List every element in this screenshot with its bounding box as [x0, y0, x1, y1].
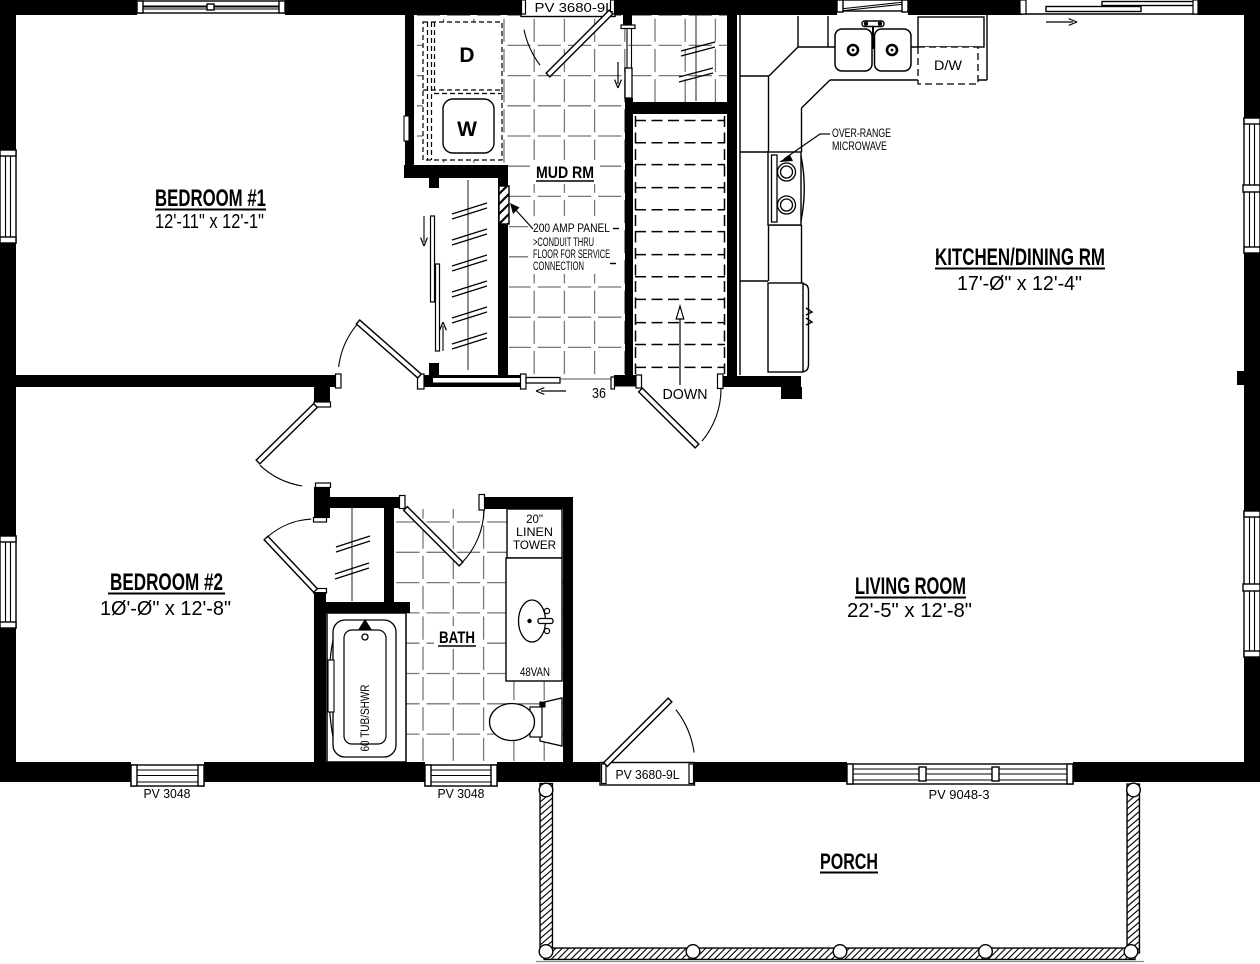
svg-text:PV 3048: PV 3048 [144, 786, 191, 801]
svg-text:MICROWAVE: MICROWAVE [832, 139, 887, 153]
svg-text:PV 9048-3: PV 9048-3 [929, 787, 990, 802]
svg-text:MUD RM: MUD RM [536, 163, 594, 182]
svg-text:DOWN: DOWN [663, 386, 708, 403]
svg-text:1Ø'-Ø" x 12'-8": 1Ø'-Ø" x 12'-8" [100, 598, 231, 620]
svg-text:D/W: D/W [934, 57, 963, 73]
svg-text:200 AMP PANEL: 200 AMP PANEL [533, 221, 610, 235]
svg-text:LIVING ROOM: LIVING ROOM [855, 573, 966, 600]
svg-text:20": 20" [526, 514, 543, 526]
svg-text:FLOOR FOR SERVICE: FLOOR FOR SERVICE [533, 249, 610, 261]
svg-text:TOWER: TOWER [513, 540, 556, 552]
svg-text:OVER-RANGE: OVER-RANGE [832, 126, 891, 140]
svg-text:PV 3048: PV 3048 [438, 786, 485, 801]
svg-text:KITCHEN/DINING RM: KITCHEN/DINING RM [935, 244, 1105, 271]
svg-text:PV 3680-9L: PV 3680-9L [535, 0, 614, 15]
svg-text:W: W [457, 118, 477, 141]
svg-text:BEDROOM #1: BEDROOM #1 [155, 185, 266, 212]
svg-text:LINEN: LINEN [516, 527, 553, 539]
svg-text:60 TUB/SHWR: 60 TUB/SHWR [358, 684, 372, 751]
svg-text:BEDROOM #2: BEDROOM #2 [110, 569, 223, 596]
svg-text:17'-Ø" x 12'-4": 17'-Ø" x 12'-4" [957, 273, 1082, 295]
svg-text:12'-11" x 12'-1": 12'-11" x 12'-1" [155, 211, 264, 233]
svg-text:D: D [459, 44, 474, 67]
svg-text:BATH: BATH [439, 628, 475, 647]
svg-text:CONNECTION: CONNECTION [533, 261, 584, 273]
svg-text:PORCH: PORCH [820, 849, 878, 874]
svg-text:>CONDUIT THRU: >CONDUIT THRU [533, 237, 594, 249]
svg-text:PV 3680-9L: PV 3680-9L [616, 767, 680, 782]
svg-text:22'-5" x 12'-8": 22'-5" x 12'-8" [847, 600, 972, 622]
svg-text:48VAN: 48VAN [520, 667, 550, 679]
svg-text:36: 36 [592, 385, 606, 402]
